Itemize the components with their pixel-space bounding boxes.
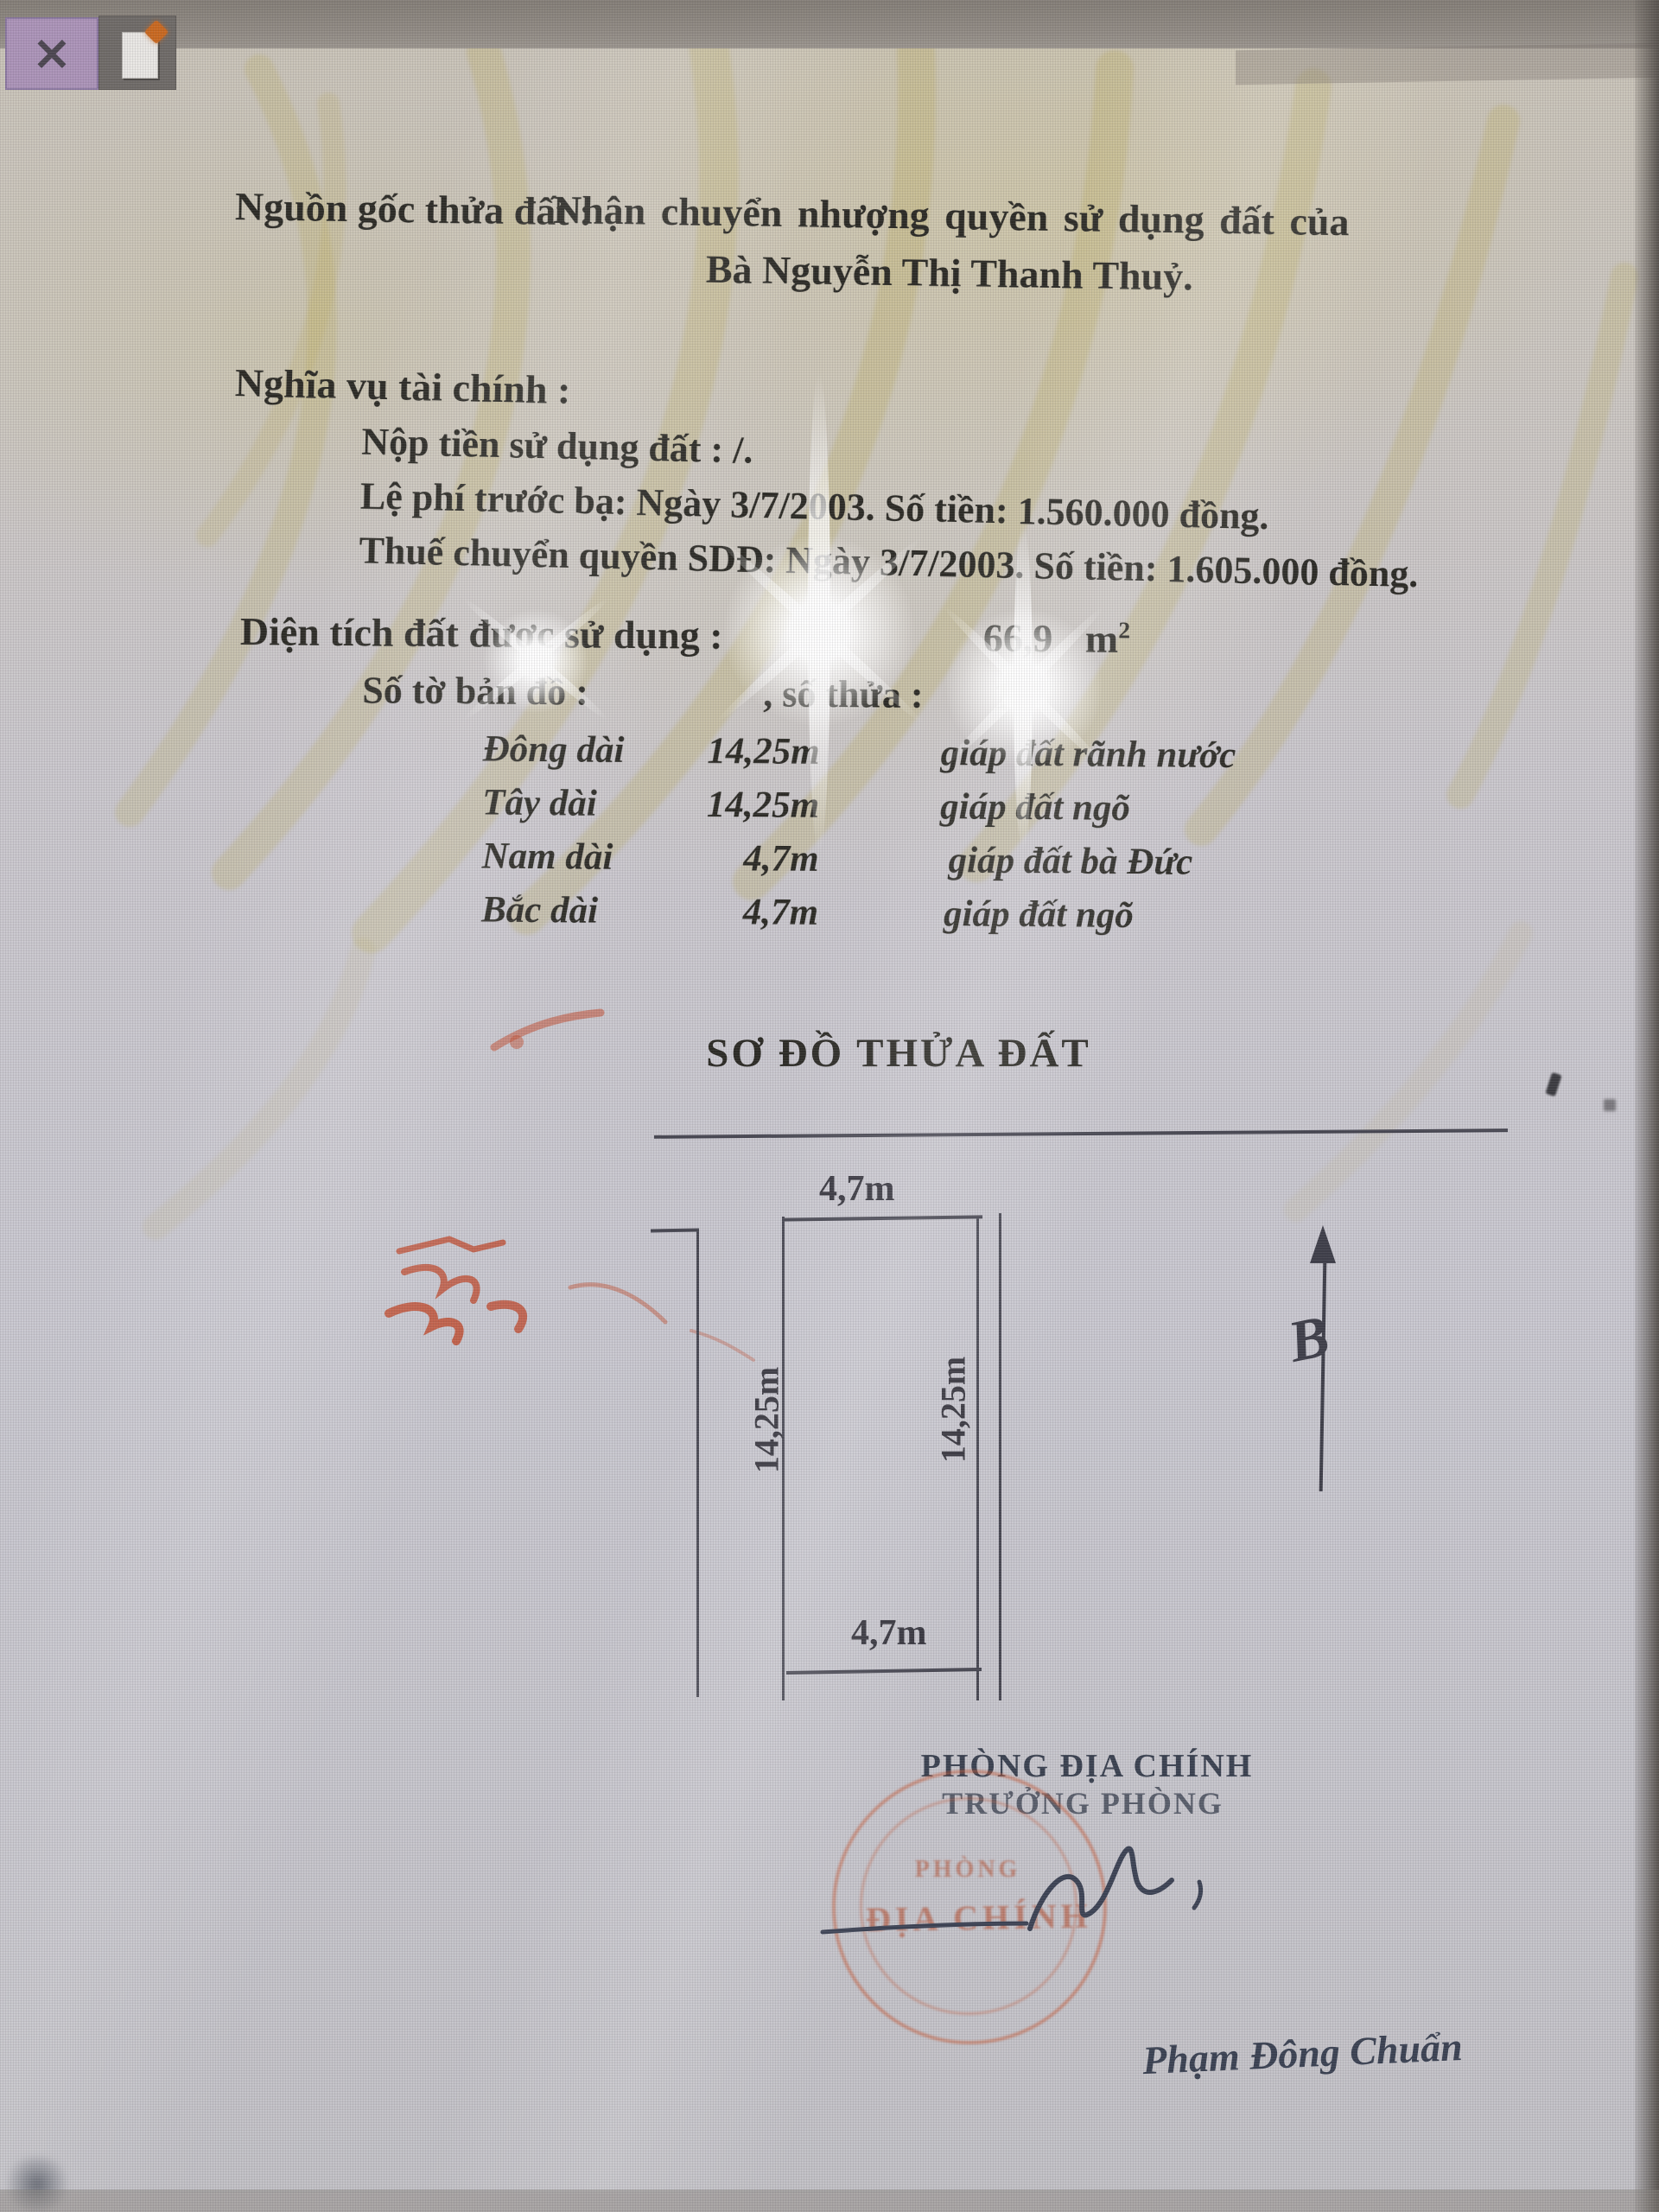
plot-right-length-label: 14,25m xyxy=(933,1345,974,1475)
origin-label: Nguồn gốc thửa đất : xyxy=(235,183,593,234)
plot-left-length-label: 14,25m xyxy=(747,1356,787,1485)
signature-flourish xyxy=(1030,1849,1172,1929)
boundary-adjacent: giáp đất ngõ xyxy=(944,893,1134,937)
red-scribble-stroke xyxy=(399,1239,503,1251)
origin-text-line2: Bà Nguyễn Thị Thanh Thuỷ. xyxy=(706,246,1194,300)
boundary-length: 4,7m xyxy=(663,890,818,934)
red-scribble-stroke xyxy=(389,1306,460,1341)
area-unit-sup: 2 xyxy=(1118,617,1130,644)
red-scribble-stroke xyxy=(570,1285,665,1322)
plot-right-boundary-line xyxy=(976,1217,979,1700)
window-titlebar-shadow xyxy=(1236,43,1659,86)
north-arrow-shaft xyxy=(1319,1260,1327,1491)
screen-bottom-edge xyxy=(0,2190,1659,2212)
plot-bottom-width-label: 4,7m xyxy=(851,1612,927,1654)
parcel-number-label: , số thửa : xyxy=(763,671,924,717)
adjacent-parcel-side-line xyxy=(696,1230,699,1697)
parcel-number-value: 1 xyxy=(993,674,1012,718)
finance-heading: Nghĩa vụ tài chính : xyxy=(234,359,571,413)
area-label: Diện tích đất được sử dụng : xyxy=(240,608,723,658)
close-icon: × xyxy=(32,29,73,78)
watermark-stroke xyxy=(130,69,322,812)
neighbor-boundary-line xyxy=(999,1213,1001,1700)
screen-right-edge xyxy=(1635,0,1659,2212)
red-scribbles xyxy=(0,950,1659,1469)
north-arrow-head-icon xyxy=(1310,1225,1336,1263)
boundary-side: Bắc dài xyxy=(481,888,598,931)
boundary-side: Đông dài xyxy=(483,728,625,771)
red-scribble-stroke xyxy=(404,1268,477,1300)
boundary-length: 14,25m xyxy=(664,729,820,773)
boundary-adjacent: giáp đất ngõ xyxy=(940,785,1130,829)
new-document-button[interactable] xyxy=(99,16,176,90)
boundary-side: Nam dài xyxy=(481,835,613,878)
signature-comma xyxy=(1194,1882,1201,1908)
map-sheet-label: Số tờ bản đồ : xyxy=(362,668,588,714)
edge-speck xyxy=(1604,1099,1616,1111)
photographed-screen: { "window": { "close_glyph": "×" }, "col… xyxy=(0,0,1659,2212)
red-scribble-stroke xyxy=(691,1331,753,1360)
red-scribble-stroke xyxy=(491,1305,523,1329)
signature xyxy=(0,1815,1659,2039)
boundary-length: 14,25m xyxy=(664,783,819,827)
red-scribble-dot xyxy=(510,1035,524,1049)
boundary-adjacent: giáp đất rãnh nước xyxy=(940,732,1236,777)
north-arrow: B xyxy=(1296,1225,1357,1493)
area-unit: m2 xyxy=(1085,616,1131,662)
close-button[interactable]: × xyxy=(5,17,99,90)
plot-top-width-label: 4,7m xyxy=(819,1168,895,1210)
signature-underline xyxy=(823,1923,1027,1932)
boundary-adjacent: giáp đất bà Đức xyxy=(948,839,1192,883)
boundary-side: Tây dài xyxy=(482,781,597,824)
area-value: 66,9 xyxy=(983,614,1053,661)
finance-item: Nộp tiền sử dụng đất : /. xyxy=(361,419,753,472)
window-titlebar xyxy=(0,0,1659,48)
plot-diagram-title: SƠ ĐỒ THỬA ĐẤT xyxy=(657,1030,1141,1077)
watermark-stroke xyxy=(1460,276,1624,795)
boundary-length: 4,7m xyxy=(663,836,818,880)
area-unit-m: m xyxy=(1085,617,1119,661)
